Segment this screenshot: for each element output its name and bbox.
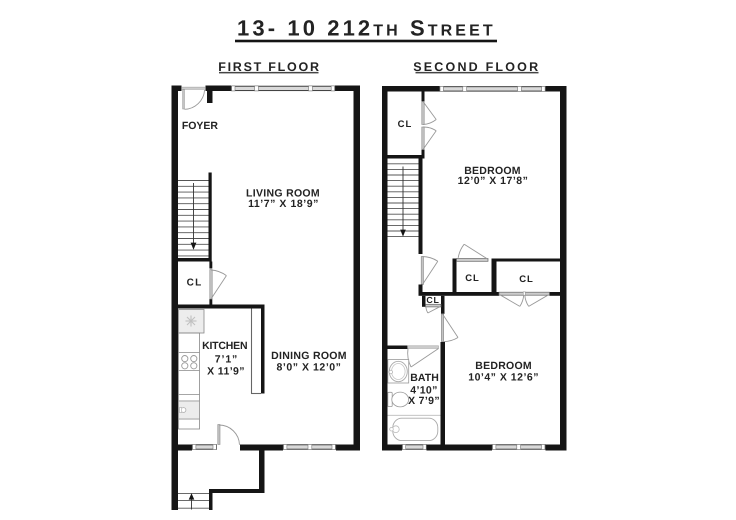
svg-text:CL: CL [187,278,203,289]
svg-text:CL: CL [519,274,533,285]
svg-text:X 7’9”: X 7’9” [408,395,440,407]
svg-text:CL: CL [465,273,479,284]
svg-text:X 11’9”: X 11’9” [207,366,245,378]
svg-text:12’0” X 17’8”: 12’0” X 17’8” [458,175,529,187]
svg-text:BEDROOM: BEDROOM [475,360,532,372]
svg-text:DINING ROOM: DINING ROOM [271,350,347,362]
svg-text:SECOND FLOOR: SECOND FLOOR [413,60,540,74]
svg-text:10’4” X 12’6”: 10’4” X 12’6” [468,371,539,383]
svg-text:CL: CL [398,119,413,130]
svg-text:CL: CL [426,295,439,305]
svg-text:KITCHEN: KITCHEN [202,340,247,352]
svg-text:FOYER: FOYER [182,120,219,132]
svg-text:11’7” X 18’9”: 11’7” X 18’9” [248,198,319,210]
svg-text:7’1”: 7’1” [215,354,238,366]
svg-text:FIRST FLOOR: FIRST FLOOR [218,60,321,74]
svg-text:8’0” X 12’0”: 8’0” X 12’0” [277,362,342,374]
svg-text:BATH: BATH [410,372,439,384]
